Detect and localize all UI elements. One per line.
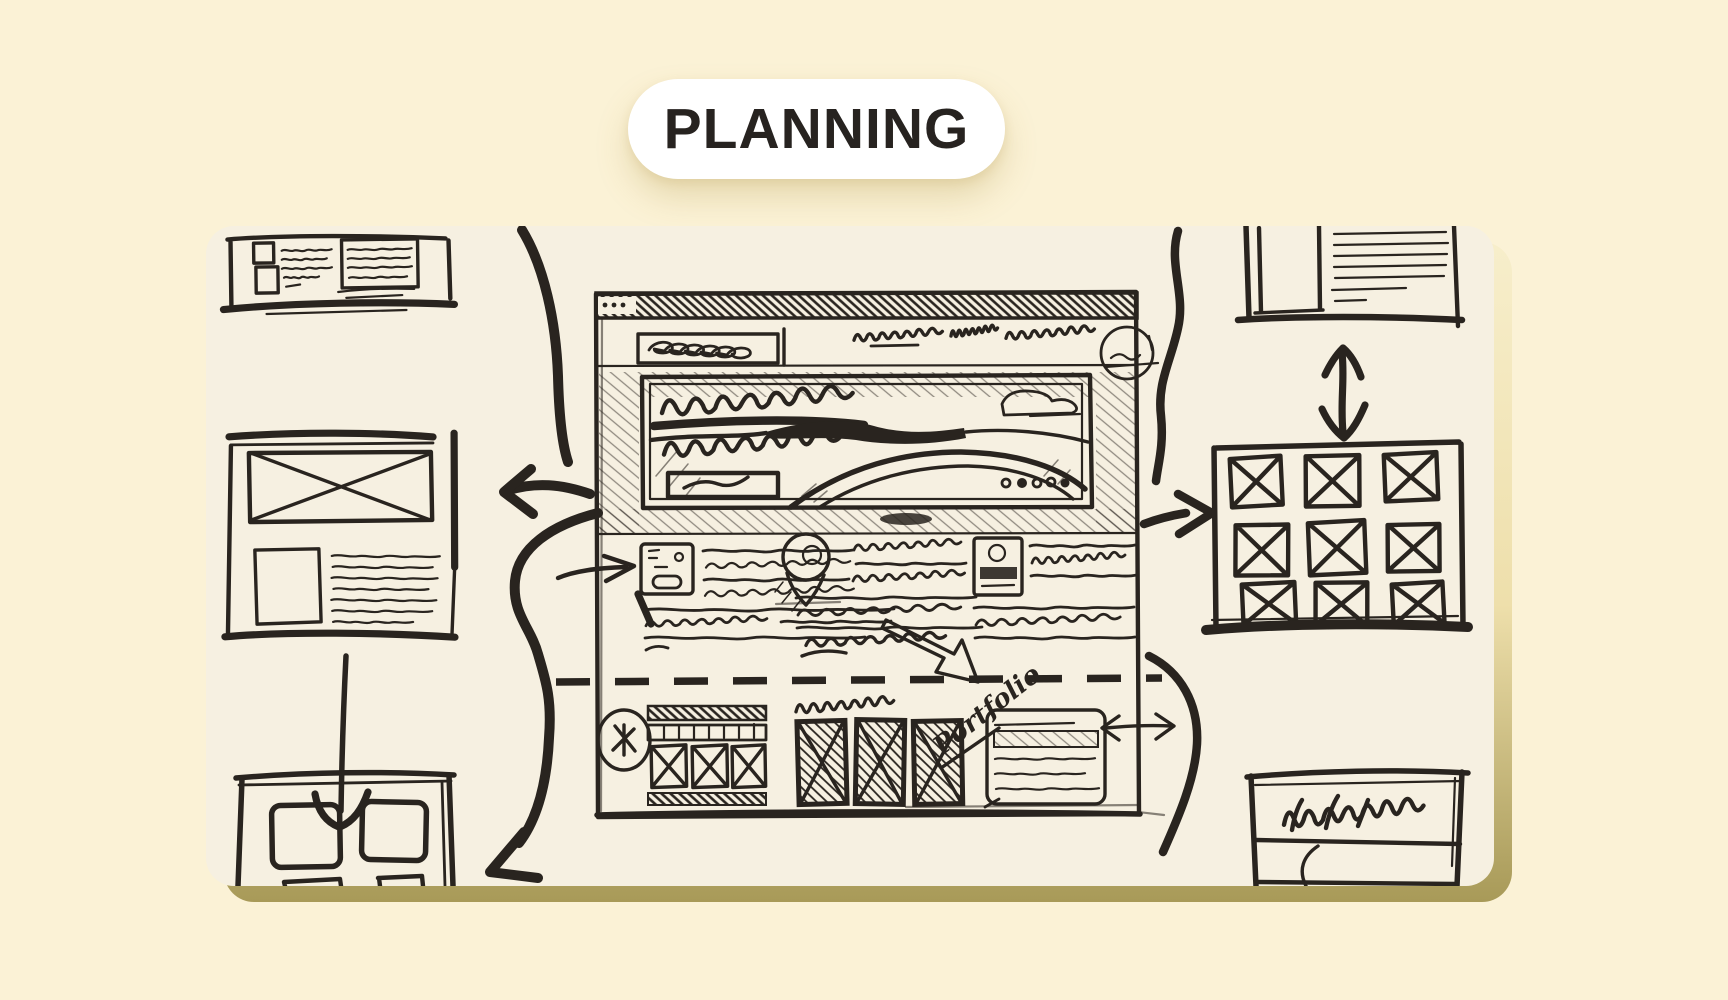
user-circle-icon	[598, 710, 650, 770]
browser-titlebar	[596, 293, 1137, 318]
wavy-line-connector-right	[1156, 231, 1180, 481]
scribble-text-lines	[282, 249, 333, 286]
nav-scribble	[854, 325, 1094, 346]
footer-label-scribble	[796, 697, 894, 713]
image-placeholder-x	[248, 450, 433, 524]
hero-landscape-road	[651, 421, 1088, 507]
dashed-fold-divider	[556, 678, 1162, 682]
arrow-right-icon	[1144, 494, 1212, 534]
arrow-vertical-double-icon	[1322, 348, 1365, 438]
planning-sketch-photo: Portfolio	[206, 226, 1494, 886]
curve-connector-bottom-right	[1149, 656, 1197, 852]
handwriting-scribble	[1284, 796, 1424, 830]
badge-label: PLANNING	[664, 96, 970, 162]
wireframe-two-panel-top-right	[1238, 226, 1462, 326]
arrow-s-curve-connector	[490, 513, 598, 878]
envelope-icon	[641, 544, 693, 594]
footer-table-block	[648, 706, 766, 805]
wireframe-article-top-left	[222, 234, 454, 314]
wireframe-sketch-illustration: Portfolio	[206, 226, 1494, 886]
scribble-text-lines	[331, 555, 440, 624]
arrow-down-icon	[315, 656, 368, 827]
logo-box	[638, 329, 784, 365]
feature-columns	[641, 534, 1136, 682]
arrow-left-curved-connector	[504, 230, 590, 514]
arrow-small-right-icon	[558, 556, 651, 624]
scribble-text-lines	[974, 545, 1136, 639]
wireframe-card-grid-bottom-left	[236, 773, 454, 886]
wireframe-signature-bottom-right	[1247, 771, 1468, 886]
wireframe-image-text-left	[225, 431, 457, 639]
page: PLANNING	[0, 0, 1728, 1000]
section-badge: PLANNING	[628, 79, 1005, 179]
window-dots-icon	[603, 303, 626, 308]
note-card-sketch	[985, 710, 1105, 807]
scribble-text-lines	[1332, 232, 1448, 301]
wireframe-thumbnail-grid-right	[1206, 442, 1468, 630]
browser-window-sketch: Portfolio	[556, 292, 1174, 817]
circle-badge-icon	[1101, 327, 1158, 379]
portrait-photo-icon	[974, 538, 1022, 595]
scribble-text-lines	[338, 248, 415, 298]
hero-button	[668, 473, 778, 497]
